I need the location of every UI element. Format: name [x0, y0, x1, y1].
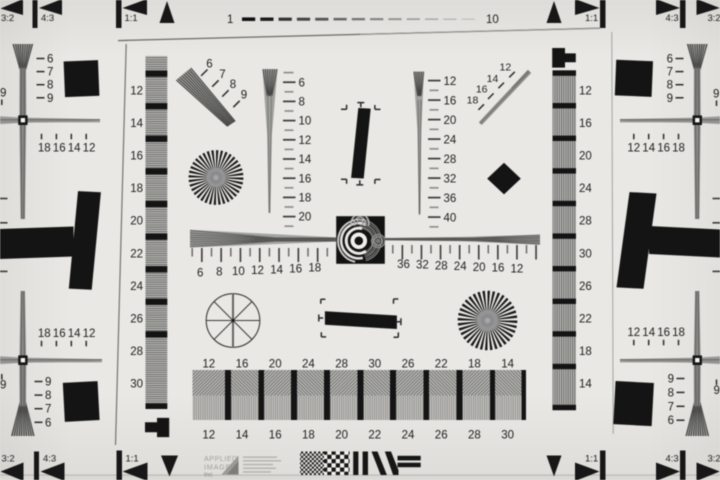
svg-text:12: 12 [627, 327, 640, 339]
svg-text:6: 6 [299, 77, 305, 89]
svg-text:18: 18 [467, 95, 479, 107]
svg-text:16: 16 [299, 173, 312, 185]
svg-text:36: 36 [444, 193, 457, 205]
svg-text:Inc: Inc [204, 471, 213, 478]
svg-text:1:1: 1:1 [126, 454, 139, 465]
svg-text:20: 20 [473, 262, 486, 274]
svg-text:18: 18 [302, 430, 315, 442]
svg-text:8: 8 [216, 267, 222, 279]
svg-text:26: 26 [435, 430, 448, 442]
svg-text:18: 18 [299, 193, 312, 205]
svg-text:24: 24 [454, 261, 467, 273]
svg-text:9: 9 [241, 90, 247, 102]
svg-text:18: 18 [38, 143, 51, 155]
svg-text:10: 10 [486, 14, 499, 26]
svg-text:20: 20 [444, 115, 457, 127]
svg-text:16: 16 [269, 430, 282, 442]
svg-text:18: 18 [468, 359, 481, 371]
svg-text:28: 28 [468, 430, 481, 442]
svg-text:7: 7 [45, 404, 51, 416]
svg-text:16: 16 [289, 264, 302, 276]
svg-text:14: 14 [642, 327, 655, 339]
svg-text:20: 20 [269, 359, 282, 371]
svg-text:24: 24 [579, 183, 592, 195]
svg-text:16: 16 [130, 151, 143, 163]
svg-text:16: 16 [657, 327, 670, 339]
svg-text:12: 12 [500, 61, 512, 73]
svg-text:4:3: 4:3 [43, 454, 56, 465]
svg-text:6: 6 [197, 268, 203, 280]
svg-text:14: 14 [68, 328, 81, 340]
svg-text:7: 7 [667, 67, 673, 79]
svg-text:3:2: 3:2 [708, 13, 720, 24]
svg-text:8: 8 [299, 97, 305, 109]
svg-text:28: 28 [579, 216, 592, 228]
svg-text:12: 12 [83, 328, 96, 340]
svg-text:9: 9 [713, 89, 719, 101]
svg-text:6: 6 [45, 417, 51, 429]
svg-text:8: 8 [667, 80, 673, 92]
svg-text:28: 28 [335, 359, 348, 371]
svg-text:12: 12 [579, 85, 592, 97]
svg-text:18: 18 [672, 327, 685, 339]
svg-text:3:2: 3:2 [708, 454, 720, 465]
svg-text:1:1: 1:1 [585, 454, 598, 465]
svg-text:9: 9 [47, 93, 53, 105]
svg-text:32: 32 [444, 173, 457, 185]
svg-text:12: 12 [202, 430, 215, 442]
svg-text:1:1: 1:1 [585, 13, 598, 24]
svg-text:1: 1 [227, 14, 233, 26]
svg-text:18: 18 [38, 328, 51, 340]
svg-text:36: 36 [397, 259, 410, 271]
svg-text:12: 12 [202, 359, 215, 371]
svg-text:6: 6 [206, 59, 212, 71]
svg-text:12: 12 [511, 263, 524, 275]
svg-text:7: 7 [668, 401, 674, 413]
svg-text:18: 18 [308, 263, 321, 275]
svg-text:22: 22 [130, 248, 143, 260]
svg-text:6: 6 [47, 54, 53, 66]
svg-text:4:3: 4:3 [666, 13, 679, 24]
svg-text:26: 26 [402, 359, 415, 371]
svg-text:20: 20 [299, 212, 312, 224]
svg-text:30: 30 [368, 359, 381, 371]
svg-text:22: 22 [368, 430, 381, 442]
svg-text:6: 6 [668, 415, 674, 427]
svg-text:24: 24 [302, 359, 315, 371]
svg-text:30: 30 [579, 248, 592, 260]
svg-text:24: 24 [402, 430, 415, 442]
svg-text:1:1: 1:1 [125, 13, 138, 24]
svg-text:24: 24 [130, 281, 143, 293]
svg-text:9: 9 [668, 374, 674, 386]
svg-text:12: 12 [299, 135, 312, 147]
svg-text:16: 16 [444, 95, 457, 107]
svg-text:20: 20 [130, 216, 143, 228]
svg-text:12: 12 [251, 265, 264, 277]
svg-text:28: 28 [435, 260, 448, 272]
svg-text:12: 12 [627, 143, 640, 155]
svg-text:14: 14 [299, 154, 312, 166]
svg-text:12: 12 [130, 85, 143, 97]
svg-text:14: 14 [642, 143, 655, 155]
svg-text:14: 14 [501, 359, 514, 371]
svg-text:8: 8 [230, 79, 236, 91]
svg-text:26: 26 [130, 314, 143, 326]
svg-text:20: 20 [335, 430, 348, 442]
svg-text:32: 32 [416, 260, 429, 272]
svg-text:9: 9 [0, 380, 6, 392]
svg-text:22: 22 [579, 314, 592, 326]
svg-text:14: 14 [487, 73, 499, 85]
svg-text:20: 20 [579, 151, 592, 163]
svg-text:16: 16 [236, 359, 249, 371]
svg-text:18: 18 [130, 183, 143, 195]
svg-text:8: 8 [668, 387, 674, 399]
svg-text:28: 28 [444, 154, 457, 166]
svg-text:10: 10 [299, 116, 312, 128]
svg-text:22: 22 [435, 359, 448, 371]
svg-text:4:3: 4:3 [41, 13, 54, 24]
svg-text:7: 7 [219, 69, 225, 81]
svg-text:16: 16 [492, 263, 505, 275]
svg-text:16: 16 [579, 118, 592, 130]
svg-text:9: 9 [45, 377, 51, 389]
svg-text:14: 14 [130, 118, 143, 130]
svg-text:9: 9 [0, 88, 6, 100]
svg-text:3:2: 3:2 [1, 13, 14, 24]
svg-text:16: 16 [53, 328, 66, 340]
svg-text:16: 16 [657, 143, 670, 155]
svg-text:28: 28 [130, 346, 143, 358]
svg-text:8: 8 [47, 80, 53, 92]
svg-text:14: 14 [68, 143, 81, 155]
svg-text:30: 30 [501, 430, 514, 442]
svg-text:24: 24 [444, 134, 457, 146]
svg-text:9: 9 [714, 385, 720, 397]
svg-text:26: 26 [579, 281, 592, 293]
svg-text:9: 9 [667, 93, 673, 105]
svg-text:3:2: 3:2 [2, 454, 15, 465]
svg-text:7: 7 [47, 67, 53, 79]
svg-text:16: 16 [53, 143, 66, 155]
svg-text:18: 18 [579, 346, 592, 358]
svg-text:6: 6 [667, 54, 673, 66]
svg-text:8: 8 [45, 390, 51, 402]
svg-text:4:3: 4:3 [666, 454, 679, 465]
svg-text:10: 10 [232, 266, 245, 278]
svg-text:14: 14 [270, 264, 283, 276]
svg-text:18: 18 [672, 143, 685, 155]
svg-text:12: 12 [444, 76, 457, 88]
svg-text:30: 30 [130, 379, 143, 391]
svg-text:12: 12 [83, 143, 96, 155]
svg-text:14: 14 [236, 430, 249, 442]
svg-text:40: 40 [444, 212, 457, 224]
svg-text:14: 14 [579, 379, 592, 391]
